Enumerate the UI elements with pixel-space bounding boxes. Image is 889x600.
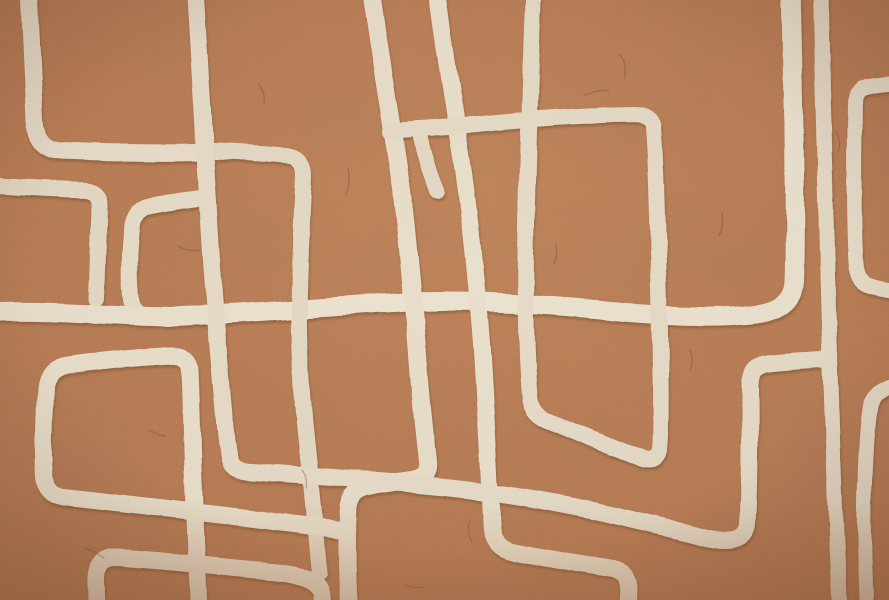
artwork-canvas [0, 0, 889, 600]
vignette [0, 0, 889, 600]
abstract-line-art [0, 0, 889, 600]
